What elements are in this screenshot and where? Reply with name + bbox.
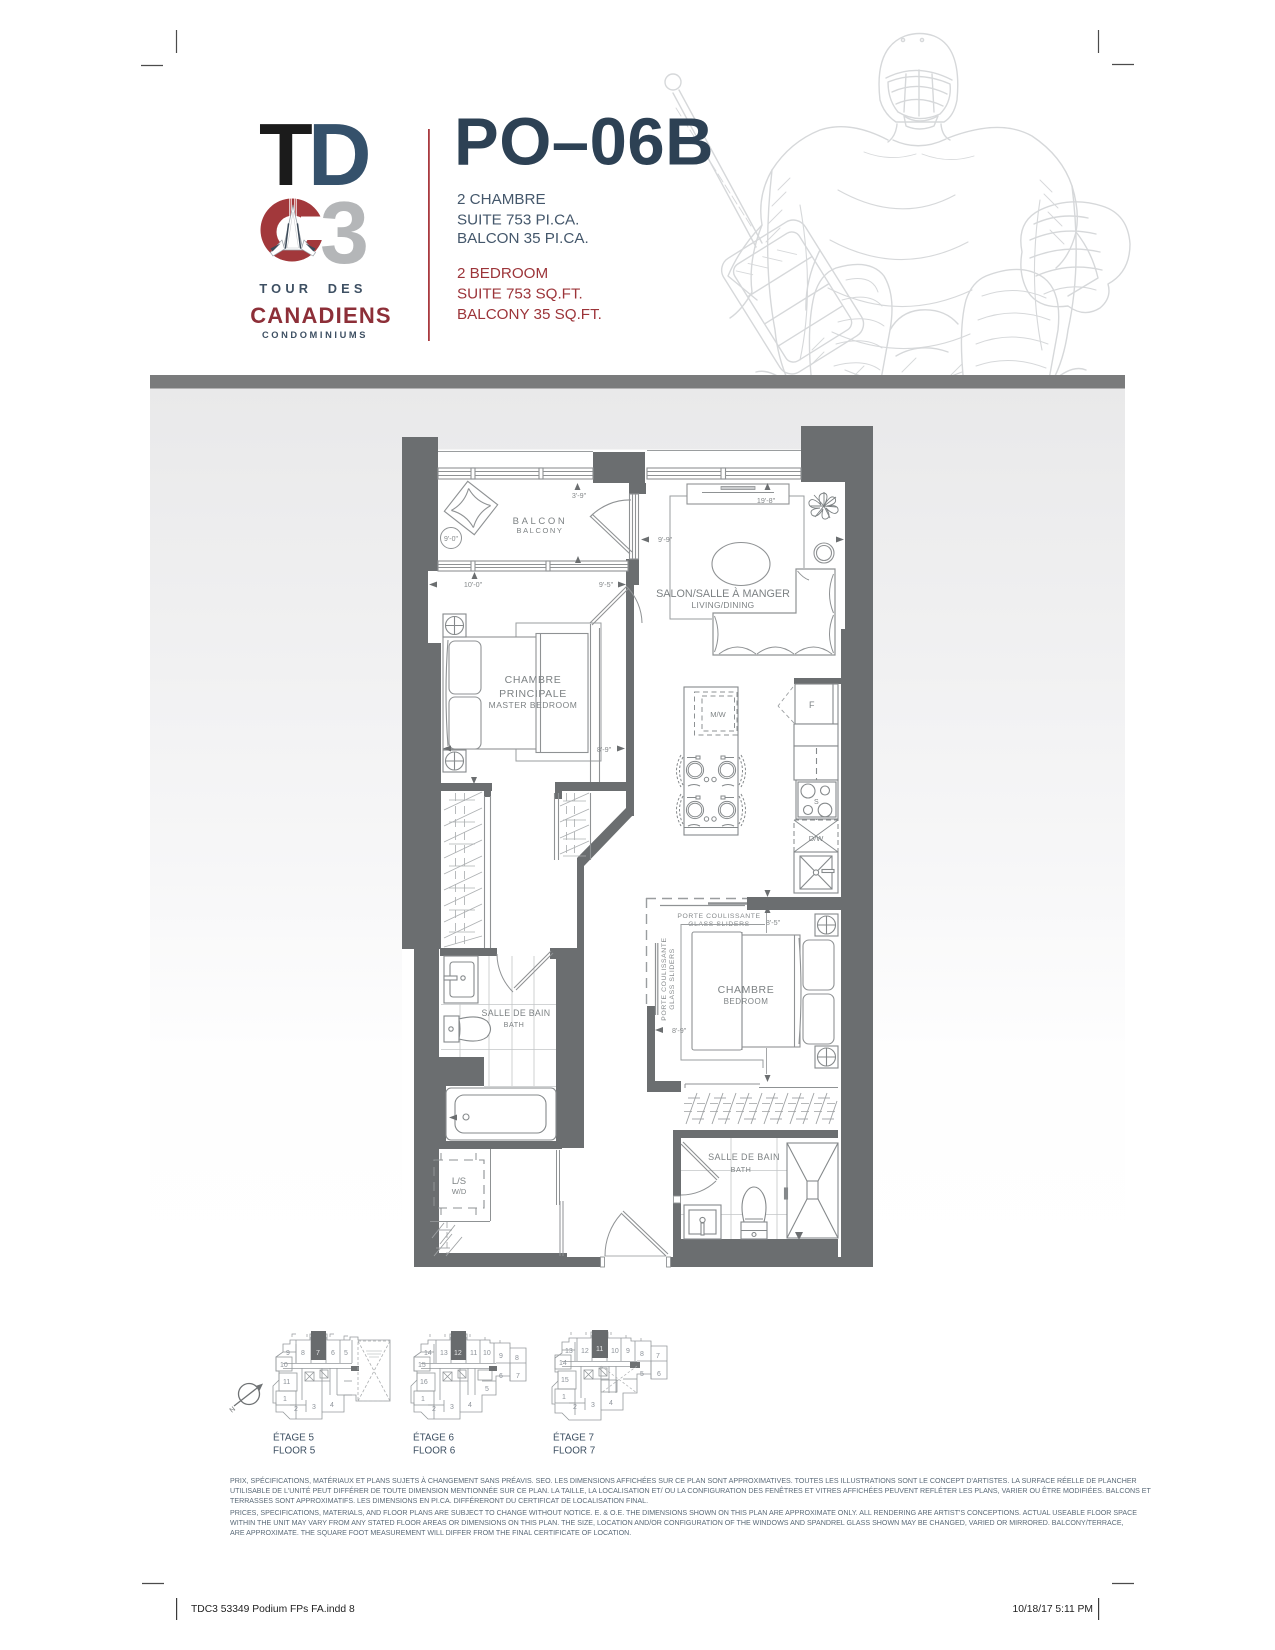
svg-text:PRIX, SPÉCIFICATIONS, MATÉRIAU: PRIX, SPÉCIFICATIONS, MATÉRIAUX ET PLANS… <box>230 1476 1137 1485</box>
svg-text:ARE APPROXIMATE. THE SQUARE F: ARE APPROXIMATE. THE SQUARE FOOT MEASURE… <box>230 1529 631 1537</box>
svg-text:9: 9 <box>499 1353 503 1360</box>
svg-text:13: 13 <box>565 1348 573 1355</box>
svg-text:14: 14 <box>424 1350 432 1357</box>
svg-text:ÉTAGE 7: ÉTAGE 7 <box>553 1433 594 1444</box>
svg-text:T: T <box>259 105 313 204</box>
svg-text:6: 6 <box>331 1350 335 1357</box>
svg-text:19'-8": 19'-8" <box>757 496 776 505</box>
svg-text:6: 6 <box>499 1373 503 1380</box>
svg-text:8'-9": 8'-9" <box>672 1026 687 1035</box>
svg-text:TERRASSES SONT APPROXIMATIFS.: TERRASSES SONT APPROXIMATIFS. LES DIMENS… <box>230 1496 648 1505</box>
svg-text:CHAMBRE: CHAMBRE <box>505 674 562 686</box>
svg-text:D/W: D/W <box>809 834 825 843</box>
svg-text:2: 2 <box>573 1404 577 1411</box>
svg-text:BALCONY 35 SQ.FT.: BALCONY 35 SQ.FT. <box>457 306 602 323</box>
svg-text:7: 7 <box>316 1350 320 1357</box>
svg-text:8'-9": 8'-9" <box>597 745 612 754</box>
svg-text:SALON/SALLE À MANGER: SALON/SALLE À MANGER <box>656 587 790 600</box>
svg-text:PRICES, SPECIFICATIONS, MATERI: PRICES, SPECIFICATIONS, MATERIALS, AND F… <box>230 1509 1137 1517</box>
svg-text:9: 9 <box>626 1348 630 1355</box>
svg-text:11: 11 <box>283 1379 290 1386</box>
svg-text:10: 10 <box>611 1348 619 1355</box>
svg-text:PORTE COULISSANTE: PORTE COULISSANTE <box>677 913 760 920</box>
svg-text:CHAMBRE: CHAMBRE <box>718 984 775 996</box>
svg-text:2: 2 <box>294 1406 298 1413</box>
svg-text:6: 6 <box>657 1371 661 1378</box>
svg-text:BATH: BATH <box>504 1020 525 1029</box>
svg-text:12: 12 <box>581 1348 589 1355</box>
svg-text:L/S: L/S <box>452 1176 466 1187</box>
svg-text:1: 1 <box>562 1394 566 1401</box>
svg-text:1: 1 <box>283 1396 287 1403</box>
svg-text:GLASS SLIDERS: GLASS SLIDERS <box>669 948 676 1009</box>
svg-text:ÉTAGE 6: ÉTAGE 6 <box>413 1433 454 1444</box>
svg-text:4: 4 <box>609 1400 613 1407</box>
svg-text:3: 3 <box>312 1404 316 1411</box>
svg-text:W/D: W/D <box>452 1187 467 1196</box>
svg-text:10'-0": 10'-0" <box>464 580 483 589</box>
svg-text:ÉTAGE 5: ÉTAGE 5 <box>273 1433 314 1444</box>
svg-text:9'-0": 9'-0" <box>444 536 458 543</box>
svg-text:11: 11 <box>470 1350 477 1357</box>
svg-text:9'-5": 9'-5" <box>599 580 614 589</box>
svg-text:4: 4 <box>468 1402 472 1409</box>
svg-text:LIVING/DINING: LIVING/DINING <box>692 600 755 610</box>
svg-text:BATH: BATH <box>731 1165 752 1174</box>
svg-text:13: 13 <box>440 1350 448 1357</box>
svg-text:2 CHAMBRE: 2 CHAMBRE <box>457 191 546 208</box>
svg-text:WITHIN THE UNIT MAY VARY FROM: WITHIN THE UNIT MAY VARY FROM ANY STATED… <box>230 1519 1124 1527</box>
svg-text:M/W: M/W <box>710 710 726 719</box>
svg-text:9'-9": 9'-9" <box>658 535 673 544</box>
svg-text:10/18/17 5:11 PM: 10/18/17 5:11 PM <box>1012 1604 1093 1615</box>
svg-text:FLOOR 5: FLOOR 5 <box>273 1446 316 1457</box>
svg-text:16: 16 <box>420 1379 428 1386</box>
svg-text:SALLE DE BAIN: SALLE DE BAIN <box>482 1008 551 1018</box>
svg-text:BALCON 35 PI.CA.: BALCON 35 PI.CA. <box>457 230 589 247</box>
svg-text:3: 3 <box>320 183 369 282</box>
svg-text:FLOOR 6: FLOOR 6 <box>413 1446 456 1457</box>
svg-text:PO–06B: PO–06B <box>454 105 714 180</box>
svg-text:3: 3 <box>591 1402 595 1409</box>
svg-text:3: 3 <box>450 1404 454 1411</box>
svg-text:F: F <box>809 700 815 710</box>
svg-text:PORTE COULISSANTE: PORTE COULISSANTE <box>661 937 668 1020</box>
svg-text:8: 8 <box>301 1350 305 1357</box>
svg-text:14: 14 <box>559 1360 567 1367</box>
svg-text:12: 12 <box>454 1350 462 1357</box>
svg-text:5: 5 <box>485 1386 489 1393</box>
svg-text:TDC3 53349 Podium FPs FA.indd: TDC3 53349 Podium FPs FA.indd 8 <box>191 1604 355 1615</box>
svg-text:CONDOMINIUMS: CONDOMINIUMS <box>262 330 368 340</box>
svg-text:11: 11 <box>596 1346 603 1353</box>
svg-text:TOUR DES: TOUR DES <box>259 281 366 296</box>
svg-text:2: 2 <box>432 1406 436 1413</box>
svg-text:SUITE 753 SQ.FT.: SUITE 753 SQ.FT. <box>457 286 583 303</box>
svg-text:SUITE 753 PI.CA.: SUITE 753 PI.CA. <box>457 212 579 229</box>
svg-text:5: 5 <box>344 1350 348 1357</box>
svg-text:8: 8 <box>515 1355 519 1362</box>
svg-text:BEDROOM: BEDROOM <box>724 997 769 1006</box>
svg-text:UTILISABLE DE L'UNITÉ PEUT DIF: UTILISABLE DE L'UNITÉ PEUT DIFFÉRER DE T… <box>230 1486 1152 1495</box>
svg-text:15: 15 <box>561 1377 569 1384</box>
svg-text:3'-9": 3'-9" <box>572 491 587 500</box>
svg-text:FLOOR 7: FLOOR 7 <box>553 1446 595 1457</box>
svg-text:8'-5": 8'-5" <box>766 918 781 927</box>
svg-text:10: 10 <box>280 1362 288 1369</box>
svg-text:15: 15 <box>418 1362 426 1369</box>
svg-text:2 BEDROOM: 2 BEDROOM <box>457 265 548 282</box>
svg-text:7: 7 <box>516 1373 520 1380</box>
svg-text:CANADIENS: CANADIENS <box>250 303 392 328</box>
svg-text:5: 5 <box>640 1371 644 1378</box>
svg-text:10: 10 <box>483 1350 491 1357</box>
svg-text:BALCONY: BALCONY <box>516 526 563 535</box>
svg-text:4: 4 <box>330 1402 334 1409</box>
svg-text:8: 8 <box>640 1351 644 1358</box>
svg-text:MASTER BEDROOM: MASTER BEDROOM <box>489 700 578 710</box>
svg-text:1: 1 <box>421 1396 425 1403</box>
svg-text:SALLE DE BAIN: SALLE DE BAIN <box>708 1152 780 1162</box>
svg-text:9: 9 <box>286 1350 290 1357</box>
svg-text:PRINCIPALE: PRINCIPALE <box>499 688 567 700</box>
svg-text:S: S <box>814 799 819 806</box>
svg-text:7: 7 <box>656 1353 660 1360</box>
